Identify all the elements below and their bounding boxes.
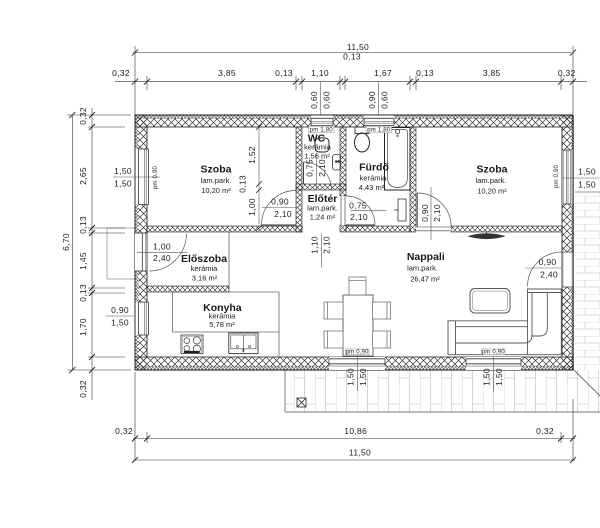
svg-text:0,90: 0,90 bbox=[111, 305, 129, 315]
svg-text:0,60: 0,60 bbox=[309, 91, 319, 109]
svg-text:0,32: 0,32 bbox=[78, 380, 88, 398]
svg-text:2,10: 2,10 bbox=[350, 212, 368, 222]
svg-text:1,00: 1,00 bbox=[153, 242, 171, 252]
svg-text:0,32: 0,32 bbox=[558, 68, 576, 78]
svg-text:1,50: 1,50 bbox=[346, 368, 356, 386]
svg-text:Fürdő: Fürdő bbox=[359, 162, 389, 174]
svg-text:0,75: 0,75 bbox=[305, 159, 315, 177]
svg-text:3,16 m²: 3,16 m² bbox=[192, 274, 218, 283]
svg-text:0,60: 0,60 bbox=[322, 91, 332, 109]
svg-text:0,32: 0,32 bbox=[536, 426, 554, 436]
svg-text:0,13: 0,13 bbox=[275, 68, 293, 78]
svg-text:0,13: 0,13 bbox=[238, 175, 248, 193]
svg-text:0,75: 0,75 bbox=[349, 201, 367, 211]
svg-text:0,90: 0,90 bbox=[420, 204, 430, 222]
svg-text:0,32: 0,32 bbox=[78, 107, 88, 125]
svg-text:Nappali: Nappali bbox=[407, 251, 445, 263]
svg-text:1,67: 1,67 bbox=[374, 68, 392, 78]
svg-text:1,50: 1,50 bbox=[494, 368, 504, 386]
svg-text:5,78 m²: 5,78 m² bbox=[209, 320, 235, 329]
svg-text:lam.park.: lam.park. bbox=[307, 204, 338, 213]
svg-text:1,10: 1,10 bbox=[311, 68, 329, 78]
svg-text:10,86: 10,86 bbox=[344, 426, 367, 436]
svg-text:11,50: 11,50 bbox=[349, 448, 371, 458]
svg-text:Szoba: Szoba bbox=[201, 164, 232, 176]
svg-text:0,32: 0,32 bbox=[115, 426, 133, 436]
svg-text:lam.park.: lam.park. bbox=[407, 264, 438, 273]
svg-text:0,90: 0,90 bbox=[367, 91, 377, 109]
svg-text:1,50: 1,50 bbox=[578, 180, 596, 190]
svg-text:1,24 m²: 1,24 m² bbox=[310, 213, 336, 222]
svg-text:2,40: 2,40 bbox=[153, 253, 171, 263]
svg-text:11,50: 11,50 bbox=[347, 42, 369, 52]
svg-text:pm 0,90: pm 0,90 bbox=[153, 166, 159, 190]
svg-text:pm 1,80: pm 1,80 bbox=[367, 128, 391, 134]
svg-text:pm 0,90: pm 0,90 bbox=[554, 165, 560, 189]
svg-text:4,43 m²: 4,43 m² bbox=[359, 183, 385, 192]
svg-text:0,13: 0,13 bbox=[416, 68, 434, 78]
svg-text:1,00: 1,00 bbox=[247, 198, 257, 216]
svg-text:lam.park.: lam.park. bbox=[201, 176, 232, 185]
svg-text:26,47 m²: 26,47 m² bbox=[410, 275, 440, 284]
svg-text:10,20 m²: 10,20 m² bbox=[201, 186, 231, 195]
svg-text:2,10: 2,10 bbox=[432, 204, 442, 222]
svg-text:6,70: 6,70 bbox=[61, 233, 71, 251]
svg-text:0,90: 0,90 bbox=[271, 197, 289, 207]
svg-text:Szoba: Szoba bbox=[477, 164, 508, 176]
svg-text:0,32: 0,32 bbox=[112, 68, 130, 78]
svg-text:1,52: 1,52 bbox=[247, 146, 257, 164]
svg-text:1,50: 1,50 bbox=[114, 179, 132, 189]
svg-text:10,20 m²: 10,20 m² bbox=[477, 187, 507, 196]
svg-text:2,10: 2,10 bbox=[322, 236, 332, 254]
svg-text:1,50: 1,50 bbox=[111, 317, 129, 327]
svg-text:0,13: 0,13 bbox=[343, 52, 361, 62]
svg-text:1,50: 1,50 bbox=[578, 167, 596, 177]
svg-text:1,50: 1,50 bbox=[358, 368, 368, 386]
svg-text:0,13: 0,13 bbox=[78, 284, 88, 302]
svg-text:1,10: 1,10 bbox=[310, 236, 320, 254]
svg-text:pm 1,80: pm 1,80 bbox=[310, 128, 334, 134]
svg-text:2,10: 2,10 bbox=[317, 159, 327, 177]
svg-text:pm 0,90: pm 0,90 bbox=[482, 350, 506, 356]
svg-text:kerámia: kerámia bbox=[360, 174, 388, 183]
svg-text:3,85: 3,85 bbox=[218, 68, 236, 78]
svg-text:1,70: 1,70 bbox=[78, 318, 88, 336]
svg-text:1,50: 1,50 bbox=[114, 166, 132, 176]
svg-text:kerámia: kerámia bbox=[191, 264, 219, 273]
svg-text:0,60: 0,60 bbox=[380, 91, 390, 109]
svg-text:1,45: 1,45 bbox=[78, 252, 88, 270]
svg-text:2,40: 2,40 bbox=[540, 270, 558, 280]
svg-text:0,90: 0,90 bbox=[539, 257, 557, 267]
svg-text:2,65: 2,65 bbox=[78, 167, 88, 185]
svg-text:kerámia: kerámia bbox=[304, 143, 332, 152]
svg-text:1,50: 1,50 bbox=[482, 368, 492, 386]
svg-text:2,10: 2,10 bbox=[274, 209, 292, 219]
svg-text:pm 0,90: pm 0,90 bbox=[346, 350, 370, 356]
svg-text:lam.park.: lam.park. bbox=[476, 176, 507, 185]
svg-text:3,85: 3,85 bbox=[483, 68, 501, 78]
svg-text:0,13: 0,13 bbox=[78, 216, 88, 234]
